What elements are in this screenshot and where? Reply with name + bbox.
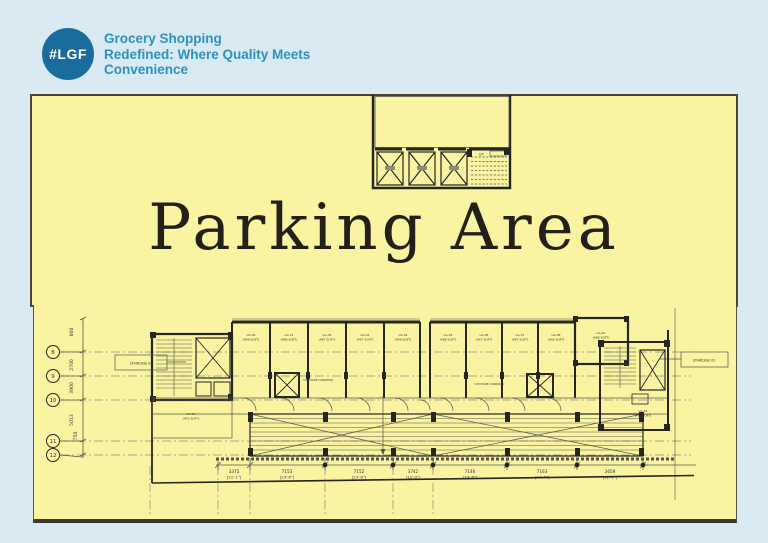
tagline-line3: Convenience — [104, 62, 310, 78]
up-label: UP — [479, 153, 484, 157]
unit-label: LG-38 — [552, 333, 561, 337]
svg-text:(488 SQFT): (488 SQFT) — [593, 336, 610, 340]
corridor-label-1: 3.0M WIDE CORRIDOR — [303, 378, 333, 382]
bottom-dim-ft: [23'-6"] — [280, 475, 295, 480]
svg-text:(487 SQFT): (487 SQFT) — [319, 338, 336, 342]
unit-label: LG-34 — [399, 333, 408, 337]
dim-600: 600 — [69, 328, 75, 337]
unit-label: LG-36 — [480, 333, 489, 337]
bottom-dim-mm: 3375 — [229, 469, 240, 474]
floor-plan: 8 9 10 11 12 600 2700 3900 5013 750 — [36, 308, 736, 520]
dim-750: 750 — [73, 432, 79, 441]
unit-label: LG-30 — [247, 333, 256, 337]
grid-bubble-12: 12 — [50, 453, 57, 459]
svg-text:(496 SQFT): (496 SQFT) — [548, 338, 565, 342]
grid-lines-horizontal — [60, 352, 691, 455]
bottom-dim-mm: 7153 — [282, 469, 293, 474]
staircase-right-label: STAIRCASE 03 — [693, 359, 715, 363]
unit-label: LG-40 — [597, 331, 606, 335]
bottom-dim-mm: 7163 — [537, 469, 548, 474]
svg-text:(487 SQFT): (487 SQFT) — [357, 338, 374, 342]
svg-text:(488 SQFT): (488 SQFT) — [281, 338, 298, 342]
svg-text:(487 SQFT): (487 SQFT) — [512, 338, 529, 342]
unit-doors — [243, 398, 561, 411]
grid-bubble-9: 9 — [51, 374, 55, 380]
svg-text:(488 SQFT): (488 SQFT) — [395, 338, 412, 342]
unit-lg43-area: (736 SQFT) — [635, 414, 652, 418]
left-stair-core — [150, 332, 233, 402]
dim-3900: 3900 — [69, 382, 75, 394]
bottom-dim-mm: 3659 — [605, 469, 616, 474]
bottom-dim-ft: [23'-6"] — [352, 475, 367, 480]
parking-area-title: Parking Area — [32, 196, 736, 260]
staircase-left-label: STAIRCASE 02 — [130, 362, 152, 366]
corridor-elevators — [275, 373, 553, 397]
unit-label: LG-37 — [516, 333, 525, 337]
dim-5013: 5013 — [69, 414, 75, 426]
bottom-dim-mm: 3742 — [408, 469, 419, 474]
bottom-dim-ft: [12'-0"] — [603, 475, 618, 480]
upper-stair-hatch — [471, 157, 507, 184]
lgf-logo-text: #LGF — [49, 46, 87, 62]
corridor-label-2: 3.0M WIDE CORRIDOR — [474, 382, 504, 386]
bottom-dim-ft: [23'-6"] — [535, 475, 550, 480]
lgf-logo: #LGF — [42, 28, 94, 80]
page: #LGF Grocery Shopping Redefined: Where Q… — [0, 0, 768, 543]
grid-bubble-8: 8 — [51, 350, 55, 356]
unit-label: LG-32 — [323, 333, 332, 337]
unit-label: LG-31 — [285, 333, 294, 337]
unit-lg29-area: (452 SQFT) — [183, 417, 200, 421]
unit-label: LG-35 — [444, 333, 453, 337]
svg-text:(488 SQFT): (488 SQFT) — [440, 338, 457, 342]
bottom-dim-mm: 7152 — [354, 469, 365, 474]
bottom-dim-ft: [11'-1"] — [227, 475, 242, 480]
dim-2700: 2700 — [69, 359, 75, 371]
tagline-line1: Grocery Shopping — [104, 31, 310, 47]
bottom-dim-ft: [23'-6"] — [463, 475, 478, 480]
unit-bank-1 — [232, 319, 420, 398]
tagline: Grocery Shopping Redefined: Where Qualit… — [104, 31, 310, 78]
bottom-dim-mm: 7146 — [465, 469, 476, 474]
svg-text:(487 SQFT): (487 SQFT) — [476, 338, 493, 342]
ramp-band — [248, 396, 644, 456]
bottom-dim-ft: [12'-3"] — [406, 475, 421, 480]
tagline-line2: Redefined: Where Quality Meets — [104, 47, 310, 63]
upper-core-plan: UP — [371, 95, 512, 190]
svg-text:(498 SQFT): (498 SQFT) — [243, 338, 260, 342]
grid-bubble-10: 10 — [50, 398, 57, 404]
grid-bubble-11: 11 — [50, 439, 57, 445]
unit-label: LG-33 — [361, 333, 370, 337]
unit-lg43-name: LG-43 — [639, 409, 648, 413]
